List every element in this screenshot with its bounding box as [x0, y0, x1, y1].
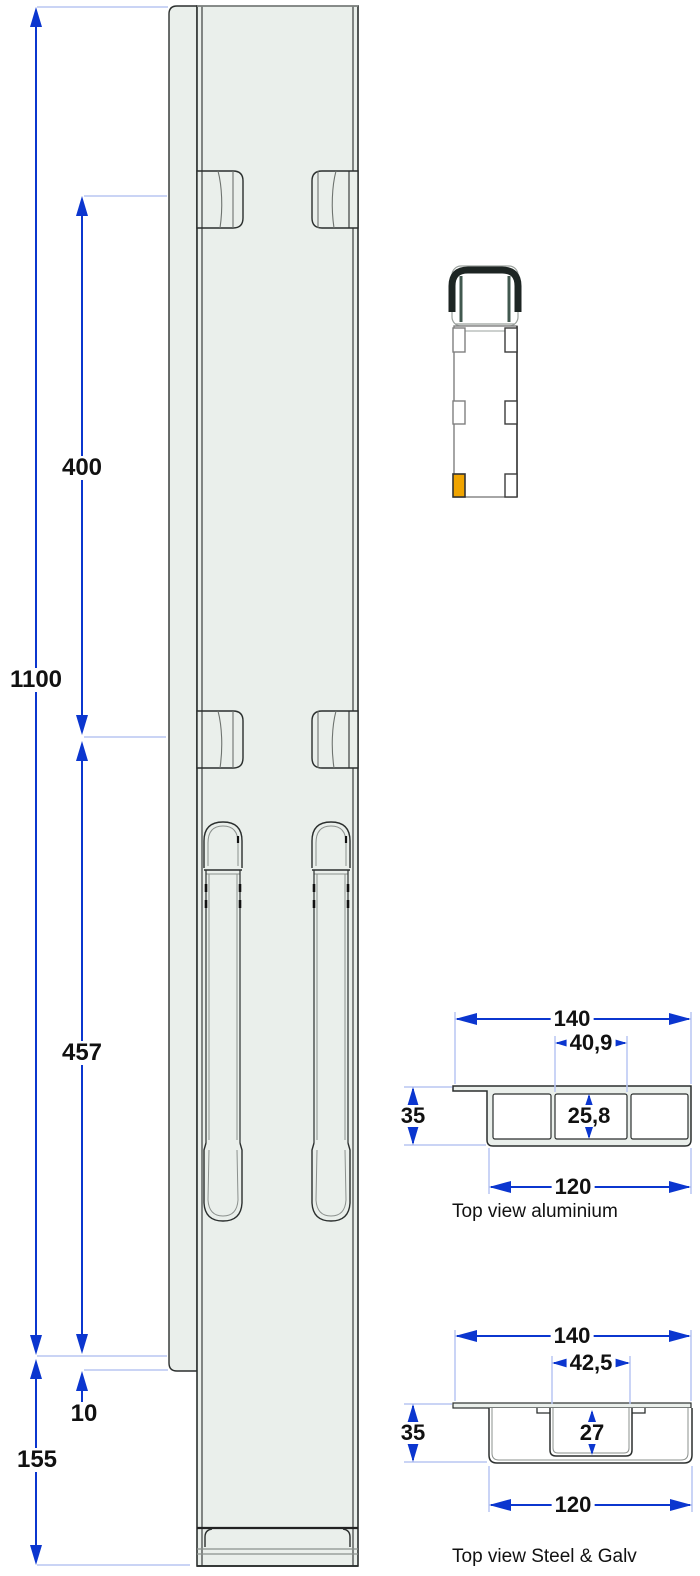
steel-top-plate — [453, 1403, 691, 1408]
side-view-dimensions — [30, 7, 190, 1565]
alu-dim-inner-label: 25,8 — [565, 1105, 614, 1127]
aluminium-caption: Top view aluminium — [452, 1201, 618, 1224]
stake-pocket-mid-right — [505, 401, 517, 424]
dimension-flange-offset — [76, 1371, 88, 1402]
section-steel — [404, 1330, 692, 1512]
dim-flange-offset-label: 10 — [68, 1402, 101, 1426]
steel-dim-height-label: 35 — [398, 1422, 428, 1444]
steel-caption: Top view Steel & Galv — [452, 1546, 637, 1569]
stake-pocket-mid-left — [453, 401, 465, 424]
side-view-post — [169, 6, 358, 1566]
steel-dim-slot-label: 42,5 — [567, 1352, 616, 1374]
dim-overall-height-label: 1100 — [7, 668, 65, 692]
post-main-face — [197, 6, 358, 1566]
technical-drawing-canvas — [0, 0, 700, 1576]
aluminium-cell-right — [631, 1094, 688, 1139]
aluminium-cell-left — [493, 1094, 551, 1139]
alu-dim-height-label: 35 — [398, 1105, 428, 1127]
post-back-flange — [169, 6, 197, 1371]
alu-dim-slot-label: 40,9 — [567, 1032, 616, 1054]
dim-base-section-label: 155 — [14, 1448, 60, 1472]
dim-upper-section-label: 400 — [59, 456, 105, 480]
stake-pocket-rear-left-highlighted — [453, 474, 465, 497]
steel-dim-inner-label: 27 — [577, 1422, 607, 1444]
drawing-page: 1100 400 457 10 155 140 40,9 35 25,8 120… — [0, 0, 700, 1576]
section-aluminium — [404, 1012, 691, 1194]
steel-dim-body-label: 120 — [552, 1494, 595, 1516]
alu-dim-width-label: 140 — [551, 1008, 594, 1030]
truck-top-view — [452, 266, 518, 497]
stake-pocket-front-right — [505, 328, 517, 352]
stake-pocket-front-left — [453, 328, 465, 352]
dim-lower-section-label: 457 — [59, 1041, 105, 1065]
steel-dim-width-label: 140 — [551, 1325, 594, 1347]
alu-dim-body-label: 120 — [552, 1176, 595, 1198]
stake-pocket-rear-right — [505, 474, 517, 497]
